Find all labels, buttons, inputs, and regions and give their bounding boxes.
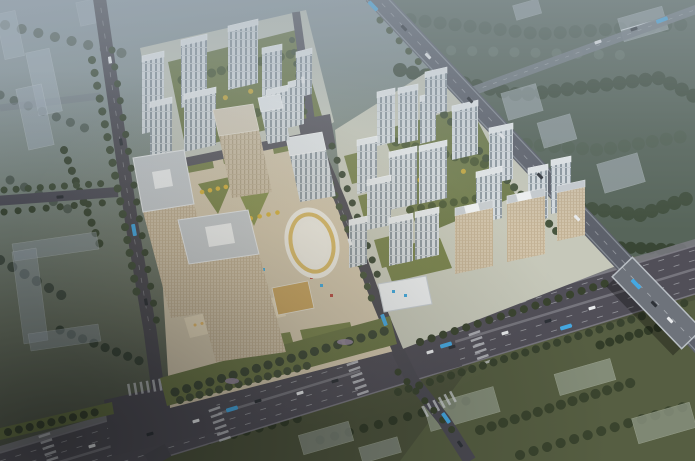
rendering-canvas — [0, 0, 695, 461]
vignette-overlay — [0, 0, 695, 461]
aerial-rendering — [0, 0, 695, 461]
